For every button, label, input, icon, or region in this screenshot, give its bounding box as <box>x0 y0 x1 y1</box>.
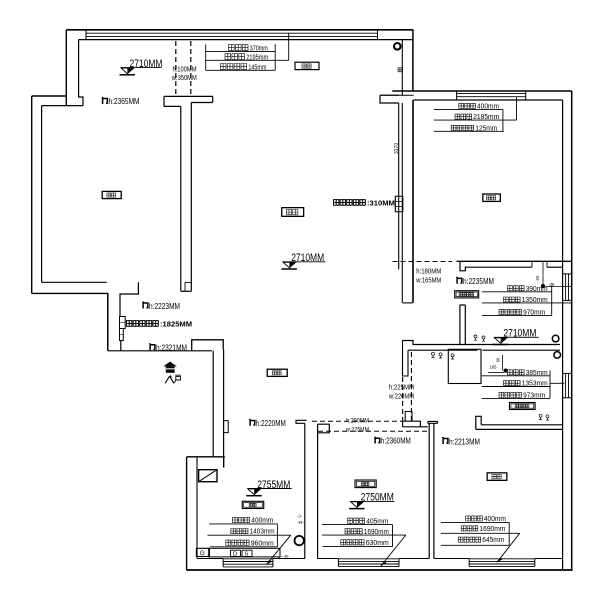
svg-text:h:2365MM: h:2365MM <box>109 96 140 106</box>
svg-text:h:2360MM: h:2360MM <box>381 437 411 446</box>
svg-text:w:225MM: w:225MM <box>345 426 369 433</box>
svg-text:-R-: -R- <box>298 520 305 525</box>
svg-text:h:2321MM: h:2321MM <box>156 343 187 353</box>
svg-text:h:225MM: h:225MM <box>389 383 414 392</box>
svg-text::1825MM: :1825MM <box>160 319 192 328</box>
svg-text::310MM: :310MM <box>367 198 395 207</box>
svg-text:w:350MM: w:350MM <box>171 74 197 82</box>
svg-text:2710MM: 2710MM <box>130 58 163 70</box>
svg-text:h:180MM: h:180MM <box>416 267 441 276</box>
svg-text:G: G <box>200 550 205 557</box>
svg-text:2710MM: 2710MM <box>503 328 536 340</box>
svg-text:1690mm: 1690mm <box>479 526 505 533</box>
svg-text:D: D <box>233 552 237 558</box>
svg-text:3170: 3170 <box>394 143 400 154</box>
svg-text:60: 60 <box>496 357 501 362</box>
svg-text:630mm: 630mm <box>366 540 389 547</box>
svg-text:645mm: 645mm <box>482 537 504 544</box>
svg-text:w:220MM: w:220MM <box>388 392 414 401</box>
svg-text:h:2223MM: h:2223MM <box>149 301 180 311</box>
svg-text:165: 165 <box>490 364 498 369</box>
svg-text:2755MM: 2755MM <box>257 479 290 491</box>
svg-text:d6: d6 <box>550 282 555 287</box>
svg-text:1403mm: 1403mm <box>250 529 275 536</box>
svg-text:S: S <box>245 552 249 558</box>
svg-text:w:165MM: w:165MM <box>415 276 441 285</box>
svg-text:60: 60 <box>535 275 540 280</box>
svg-text:h:2235MM: h:2235MM <box>463 276 494 286</box>
svg-text:960mm: 960mm <box>251 540 274 547</box>
svg-text:h:290MM: h:290MM <box>346 417 369 424</box>
svg-text:h:100MM: h:100MM <box>173 66 197 74</box>
svg-text:h:2213MM: h:2213MM <box>449 436 480 446</box>
svg-text:h:2220MM: h:2220MM <box>256 419 286 428</box>
svg-text:-J-: -J- <box>297 514 303 519</box>
